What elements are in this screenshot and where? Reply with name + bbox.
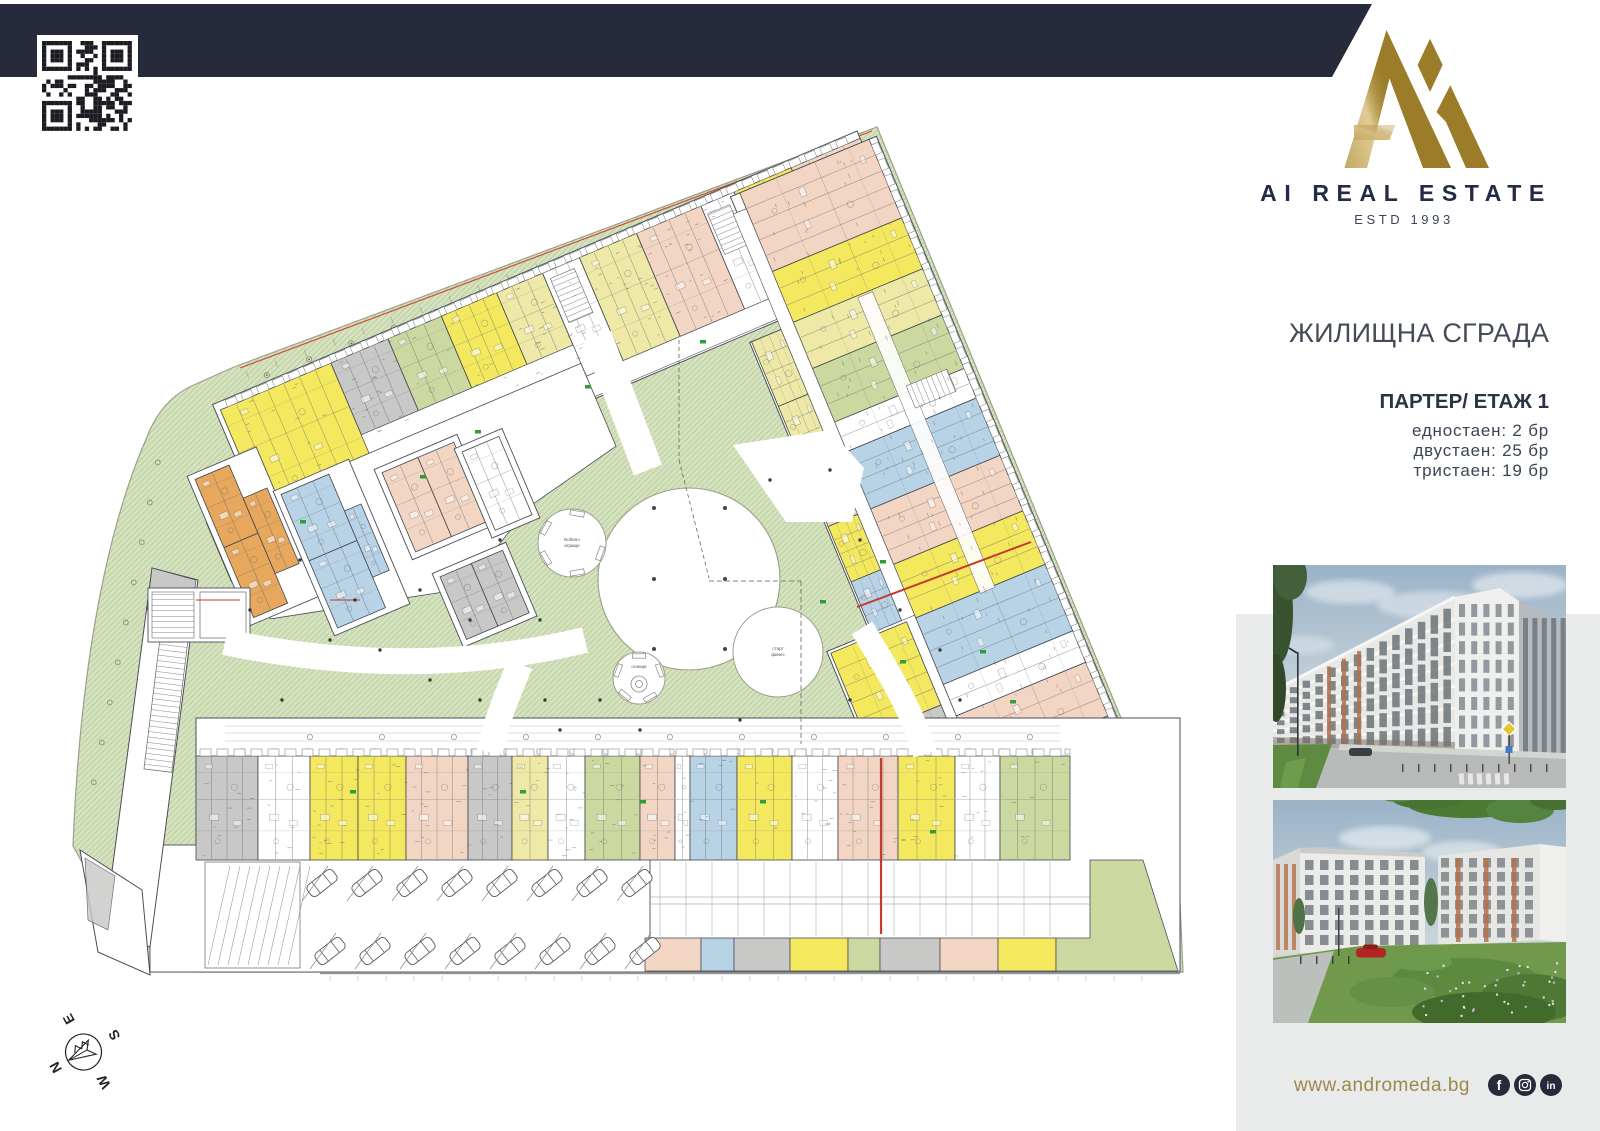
svg-text:ПАРТЕР/ ЕТАЖ 1: ПАРТЕР/ ЕТАЖ 1: [1379, 390, 1549, 413]
svg-text:старт: старт: [772, 646, 783, 651]
svg-text:едностаен: 2 бр: едностаен: 2 бр: [1412, 421, 1549, 440]
svg-text:огнище: огнище: [631, 664, 647, 669]
svg-text:игрище: игрище: [564, 543, 580, 548]
svg-text:www.andromeda.bg: www.andromeda.bg: [1293, 1075, 1470, 1096]
svg-text:Бобено: Бобено: [564, 537, 580, 542]
svg-text:двустаен: 25 бр: двустаен: 25 бр: [1413, 441, 1549, 460]
svg-text:ESTD 1993: ESTD 1993: [1354, 212, 1454, 227]
svg-text:ЖИЛИЩНА СГРАДА: ЖИЛИЩНА СГРАДА: [1289, 318, 1549, 348]
svg-text:AI REAL ESTATE: AI REAL ESTATE: [1260, 180, 1552, 206]
svg-text:тристаен: 19 бр: тристаен: 19 бр: [1414, 461, 1549, 480]
svg-text:финес: финес: [771, 652, 785, 657]
svg-text:in: in: [1547, 1081, 1556, 1092]
svg-text:f: f: [1497, 1077, 1502, 1093]
